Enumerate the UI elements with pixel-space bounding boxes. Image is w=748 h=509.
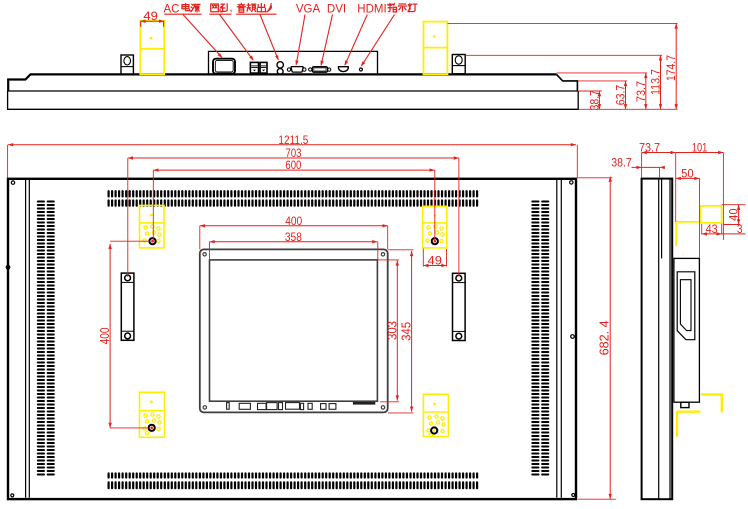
svg-text:400: 400 [98,327,112,344]
svg-text:49: 49 [143,9,158,23]
svg-text:DVI: DVI [327,4,346,16]
svg-text:174.7: 174.7 [664,55,678,81]
svg-text:1211.5: 1211.5 [278,133,308,147]
svg-text:600: 600 [285,158,301,172]
svg-text:400: 400 [285,214,302,228]
svg-text:63.7: 63.7 [614,84,628,105]
svg-text:73.7: 73.7 [639,141,660,155]
svg-text:49: 49 [428,254,443,268]
svg-text:50: 50 [681,166,694,180]
svg-text:38.7: 38.7 [611,156,632,170]
svg-text:,: , [229,2,232,14]
svg-text:HDMI: HDMI [357,4,386,16]
svg-text:40: 40 [727,208,741,221]
svg-text:113.7: 113.7 [649,69,663,95]
svg-text:38.7: 38.7 [587,90,601,111]
svg-text:73.7: 73.7 [634,81,648,102]
svg-text:101: 101 [692,141,708,155]
svg-text:303: 303 [385,321,399,340]
svg-text:3: 3 [737,222,743,236]
svg-text:345: 345 [400,322,414,341]
svg-text:VGA: VGA [296,4,321,16]
svg-text:682. 4: 682. 4 [598,320,612,355]
svg-text:358: 358 [285,230,302,244]
svg-text:43: 43 [706,222,718,236]
svg-text:AC: AC [164,3,180,15]
